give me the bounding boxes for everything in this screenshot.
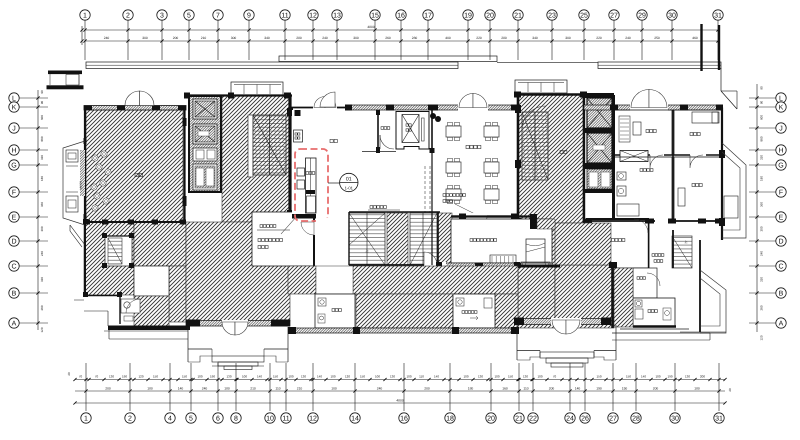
svg-text:140: 140 [641,375,646,379]
svg-text:D: D [11,239,16,246]
svg-text:12: 12 [309,13,317,20]
svg-text:23: 23 [548,13,556,20]
svg-text:120: 120 [138,375,143,379]
svg-text:28: 28 [632,416,640,423]
svg-text:21: 21 [515,416,523,423]
svg-text:110: 110 [523,386,528,390]
svg-text:880: 880 [760,136,764,141]
svg-text:400: 400 [445,36,451,40]
svg-text:22: 22 [529,416,537,423]
svg-text:300: 300 [760,226,764,231]
svg-text:160: 160 [502,386,508,390]
svg-text:100: 100 [197,375,202,379]
svg-text:100: 100 [330,375,335,379]
svg-text:150: 150 [626,375,631,379]
svg-text:120: 120 [345,375,350,379]
svg-text:E: E [779,215,784,222]
svg-text:280: 280 [501,36,507,40]
svg-text:20: 20 [67,372,71,376]
svg-text:2: 2 [126,13,130,20]
svg-text:5: 5 [187,13,191,20]
svg-text:100: 100 [463,375,468,379]
svg-text:300: 300 [231,36,237,40]
svg-text:460: 460 [692,36,698,40]
svg-text:90: 90 [760,101,764,105]
svg-text:J: J [12,126,16,133]
svg-text:J: J [779,126,783,133]
svg-text:100: 100 [494,375,499,379]
svg-text:100: 100 [242,375,247,379]
svg-text:180: 180 [224,386,230,390]
svg-text:240: 240 [322,36,328,40]
svg-text:150: 150 [360,375,365,379]
svg-text:4: 4 [168,416,172,423]
svg-text:190: 190 [596,386,602,390]
svg-text:330: 330 [40,277,44,282]
svg-text:24: 24 [566,416,574,423]
svg-text:240: 240 [760,251,764,256]
svg-text:9: 9 [247,13,251,20]
svg-text:330: 330 [760,155,764,160]
svg-text:200: 200 [653,386,659,390]
svg-text:880: 880 [40,136,44,141]
svg-text:100: 100 [655,375,660,379]
svg-text:360: 360 [40,202,44,207]
svg-text:30: 30 [671,416,679,423]
svg-text:1-01: 1-01 [345,186,354,191]
svg-text:C: C [778,264,783,271]
svg-text:600: 600 [40,115,44,120]
svg-text:210: 210 [297,386,303,390]
svg-text:130: 130 [226,375,231,379]
svg-text:29: 29 [638,13,646,20]
svg-text:MX02/1: MX02/1 [80,180,83,189]
svg-text:130: 130 [109,375,114,379]
svg-text:130: 130 [685,375,690,379]
svg-text:A: A [12,321,17,328]
svg-text:26: 26 [581,416,589,423]
svg-text:120: 120 [760,335,764,340]
svg-text:100: 100 [406,375,411,379]
svg-text:4800: 4800 [367,25,375,29]
svg-text:120: 120 [40,327,44,332]
svg-text:B: B [12,291,17,298]
svg-text:600: 600 [760,115,764,120]
svg-text:150: 150 [622,386,628,390]
svg-text:280: 280 [296,36,302,40]
svg-text:240: 240 [202,386,208,390]
svg-text:240: 240 [377,386,383,390]
svg-text:300: 300 [142,36,148,40]
svg-text:20: 20 [486,13,494,20]
svg-text:150: 150 [273,375,278,379]
svg-text:150: 150 [182,375,187,379]
svg-text:E: E [12,215,17,222]
svg-text:280: 280 [760,305,764,310]
svg-text:30: 30 [668,13,676,20]
svg-text:4800: 4800 [396,398,404,402]
svg-text:250: 250 [654,36,660,40]
svg-text:G: G [11,163,16,170]
svg-text:27: 27 [609,416,617,423]
svg-text:100: 100 [288,375,293,379]
svg-text:180: 180 [694,386,700,390]
svg-text:16: 16 [400,416,408,423]
svg-text:130: 130 [301,375,306,379]
svg-text:2: 2 [128,416,132,423]
svg-text:150: 150 [508,375,513,379]
svg-text:8: 8 [234,416,238,423]
svg-text:90: 90 [40,101,44,105]
svg-text:13: 13 [333,13,341,20]
svg-text:70: 70 [79,375,83,379]
svg-text:180: 180 [760,176,764,181]
svg-text:130: 130 [390,375,395,379]
svg-text:16: 16 [397,13,405,20]
svg-text:F: F [12,190,16,197]
svg-text:130: 130 [478,375,483,379]
svg-text:100: 100 [375,375,380,379]
svg-text:G: G [778,163,783,170]
svg-text:220: 220 [476,36,482,40]
svg-text:90: 90 [760,86,764,90]
svg-text:20: 20 [728,388,732,392]
svg-text:11: 11 [282,416,289,423]
svg-text:5: 5 [189,416,193,423]
svg-text:18: 18 [446,416,454,423]
svg-text:200: 200 [700,375,705,379]
svg-text:240: 240 [625,36,631,40]
svg-text:150: 150 [153,375,158,379]
svg-text:10: 10 [266,416,274,423]
svg-text:7: 7 [216,13,220,20]
svg-text:20: 20 [487,416,495,423]
svg-text:15: 15 [371,13,379,20]
svg-text:280: 280 [412,36,418,40]
svg-text:D: D [778,239,783,246]
svg-text:240: 240 [104,36,110,40]
svg-text:180: 180 [468,386,474,390]
svg-text:200: 200 [105,386,111,390]
svg-text:140: 140 [434,375,439,379]
svg-text:110: 110 [419,375,424,379]
svg-text:360: 360 [760,202,764,207]
svg-text:140: 140 [257,375,262,379]
svg-text:上: 上 [365,249,369,253]
svg-text:H: H [11,148,16,155]
svg-text:90: 90 [40,90,44,94]
svg-text:A: A [779,321,784,328]
svg-text:210: 210 [201,36,207,40]
svg-text:6: 6 [216,416,220,423]
svg-text:340: 340 [532,36,538,40]
svg-text:14: 14 [351,416,359,423]
svg-text:1: 1 [83,13,87,20]
svg-text:260: 260 [385,36,391,40]
svg-text:3: 3 [160,13,164,20]
svg-text:100: 100 [537,375,542,379]
svg-text:240: 240 [40,251,44,256]
svg-text:200: 200 [549,386,555,390]
svg-text:21: 21 [514,13,522,20]
svg-text:19: 19 [464,13,472,20]
svg-text:150: 150 [596,375,601,379]
svg-text:B: B [779,291,784,298]
svg-text:300: 300 [565,36,571,40]
svg-text:F: F [779,190,783,197]
svg-text:25: 25 [580,13,588,20]
svg-text:K: K [779,105,784,112]
svg-text:190: 190 [210,375,215,379]
svg-text:31: 31 [715,416,723,423]
svg-text:210: 210 [250,386,256,390]
svg-text:100: 100 [331,386,337,390]
svg-text:330: 330 [40,155,44,160]
svg-text:200: 200 [424,386,430,390]
svg-text:K: K [12,105,17,112]
svg-text:340: 340 [264,36,270,40]
svg-text:70: 70 [553,375,557,379]
svg-text:330: 330 [760,277,764,282]
svg-text:31: 31 [714,13,722,20]
svg-text:27: 27 [610,13,618,20]
svg-text:200: 200 [173,36,179,40]
svg-text:11: 11 [281,13,288,20]
svg-text:280: 280 [40,305,44,310]
svg-text:70: 70 [95,375,99,379]
svg-text:300: 300 [40,226,44,231]
svg-text:300: 300 [353,36,359,40]
svg-text:H: H [778,148,783,155]
svg-text:01: 01 [346,177,352,183]
svg-text:1: 1 [84,416,88,423]
svg-text:110: 110 [275,386,280,390]
svg-text:180: 180 [147,386,153,390]
svg-text:140: 140 [575,386,581,390]
svg-text:17: 17 [424,13,432,20]
svg-text:12: 12 [309,416,317,423]
svg-text:140: 140 [317,375,322,379]
svg-text:140: 140 [178,386,184,390]
svg-text:190: 190 [667,375,672,379]
svg-text:C: C [11,264,16,271]
svg-text:180: 180 [40,176,44,181]
svg-text:130: 130 [523,375,528,379]
svg-text:220: 220 [596,36,602,40]
svg-text:190: 190 [122,375,127,379]
